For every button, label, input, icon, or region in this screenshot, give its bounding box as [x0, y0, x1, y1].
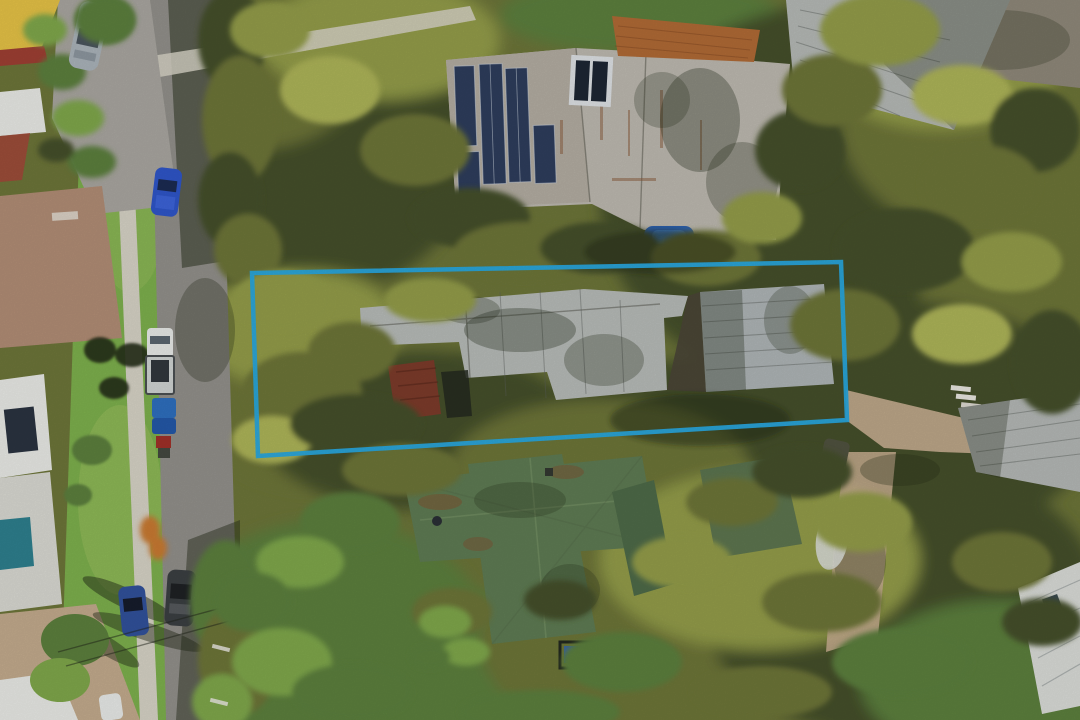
aerial-photo-canvas: [0, 0, 1080, 720]
aerial-photo: [0, 0, 1080, 720]
photo-grain-overlay: [0, 0, 1080, 720]
